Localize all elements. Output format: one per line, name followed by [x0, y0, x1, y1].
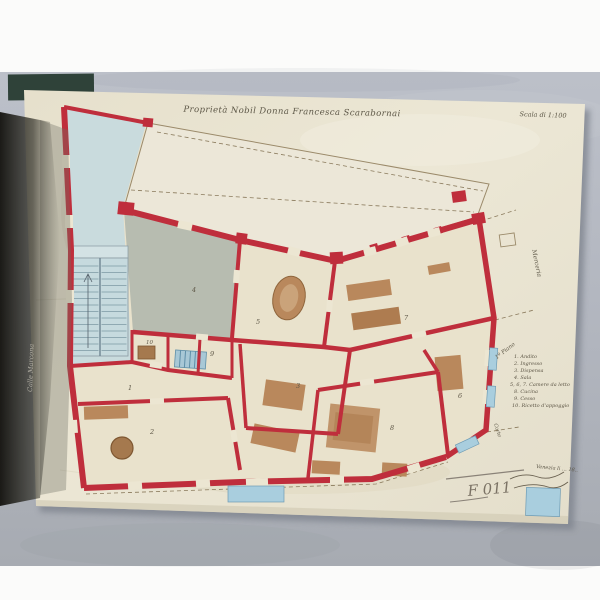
porch-step: [228, 486, 284, 502]
floor-plan-drawing: 1 2 3 4 5 6 7 8 9 10 Proprietà Nobil Don…: [0, 0, 600, 600]
hearth-blue: [174, 350, 206, 369]
photo-of-floor-plan: 1 2 3 4 5 6 7 8 9 10 Proprietà Nobil Don…: [0, 0, 600, 600]
room-number: 6: [458, 392, 462, 400]
legend-item: 1. Andito: [514, 354, 537, 360]
room-number: 1: [128, 384, 132, 392]
legend-item: 9. Cesso: [514, 396, 535, 402]
left-shadow: Calle Marcona: [0, 112, 72, 506]
survey-corner-block: [451, 190, 466, 203]
legend-item: 2. Ingresso: [513, 361, 542, 367]
blue-swatch: [526, 487, 561, 516]
room-number: 2: [149, 428, 154, 436]
street-label-left: Calle Marcona: [26, 344, 36, 393]
room-number: 9: [210, 350, 214, 358]
room-number: 8: [390, 424, 394, 432]
room-number: 3: [296, 382, 300, 390]
room-number: 4: [191, 286, 196, 294]
sideboard: [84, 405, 128, 420]
cabinet: [138, 346, 155, 359]
legend-item: 5, 6, 7. Camere da letto: [510, 382, 570, 388]
bench: [312, 460, 341, 474]
legend-item: 8. Cucina: [514, 389, 538, 395]
staircase: [72, 246, 128, 356]
stove-round: [111, 437, 133, 459]
legend-item: 4. Sala: [513, 375, 531, 381]
legend-item: 10. Ricetto d'appoggio: [512, 403, 569, 409]
scale-note: Scala di 1:100: [519, 110, 566, 120]
legend-item: 3. Dispensa: [514, 368, 543, 374]
room-number: 5: [256, 318, 260, 326]
room-number: 10: [146, 340, 153, 346]
